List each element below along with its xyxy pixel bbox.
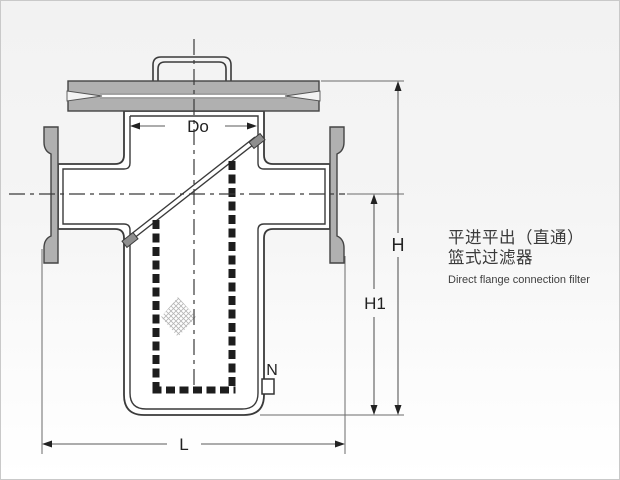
- label-n: N: [266, 362, 278, 379]
- caption-title-line2: 篮式过滤器: [448, 249, 613, 269]
- filter-diagram-canvas: Do H H1 L N 平进平出（直通）: [0, 0, 620, 480]
- dimension-h1: H1: [364, 194, 386, 415]
- caption-title-line1: 平进平出（直通）: [448, 229, 613, 249]
- dimension-l: L: [42, 435, 345, 454]
- label-l: L: [179, 435, 188, 454]
- caption-block: 平进平出（直通） 篮式过滤器 Direct flange connection …: [448, 229, 613, 286]
- lifting-handle: [153, 57, 231, 82]
- inlet-flange-left: [44, 127, 58, 263]
- caption-subtitle-english: Direct flange connection filter: [448, 274, 613, 286]
- drain-port: [262, 379, 274, 394]
- label-h1: H1: [364, 294, 386, 313]
- label-do: Do: [187, 117, 209, 136]
- dimension-h: H: [392, 81, 405, 415]
- label-h: H: [392, 235, 405, 255]
- outlet-flange-right: [330, 127, 344, 263]
